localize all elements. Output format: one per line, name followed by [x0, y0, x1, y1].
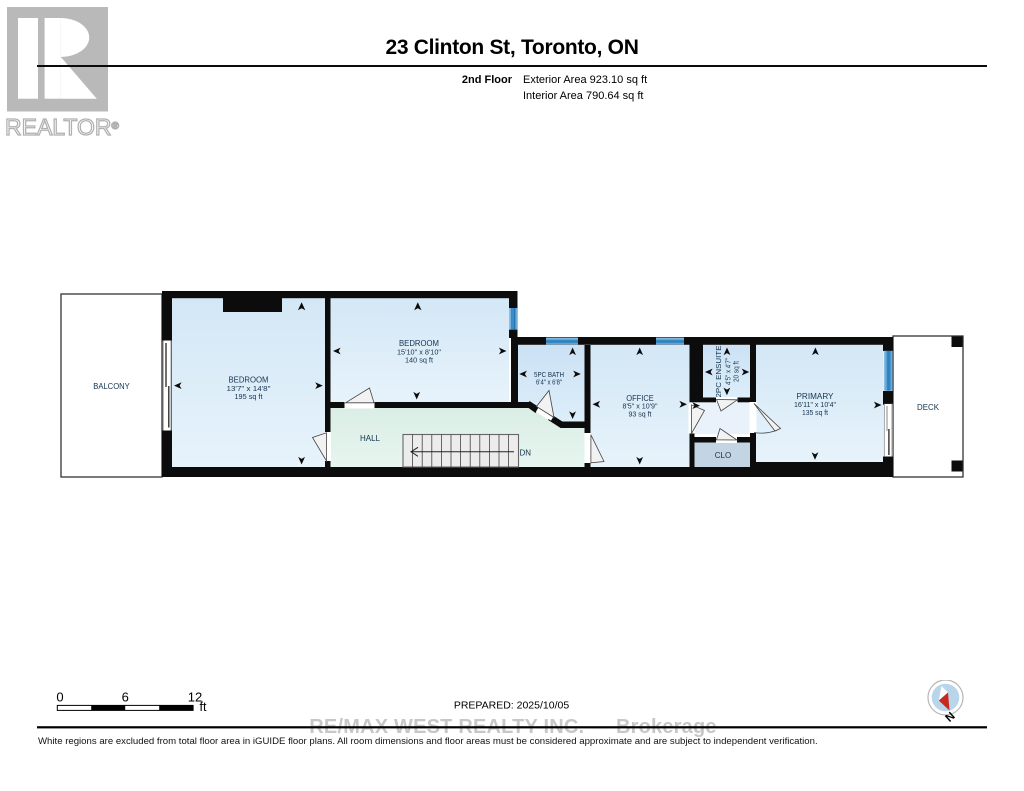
svg-text:HALL: HALL: [360, 433, 380, 443]
svg-text:BALCONY: BALCONY: [93, 382, 130, 391]
svg-text:140 sq ft: 140 sq ft: [405, 355, 434, 364]
svg-text:0: 0: [56, 690, 63, 705]
svg-text:4'5" x 4'7": 4'5" x 4'7": [725, 358, 733, 385]
svg-text:DECK: DECK: [917, 402, 939, 412]
svg-text:BEDROOM: BEDROOM: [229, 374, 269, 384]
svg-text:135 sq ft: 135 sq ft: [802, 408, 829, 417]
svg-text:CLO: CLO: [715, 451, 732, 460]
svg-text:White regions are excluded fro: White regions are excluded from total fl…: [38, 736, 818, 747]
svg-text:ft: ft: [200, 700, 207, 714]
svg-text:195 sq ft: 195 sq ft: [235, 392, 264, 401]
svg-text:DN: DN: [520, 447, 532, 457]
svg-text:6'4" x 6'8": 6'4" x 6'8": [536, 378, 562, 386]
svg-text:2PC ENSUITE: 2PC ENSUITE: [714, 345, 723, 397]
svg-text:93 sq ft: 93 sq ft: [629, 410, 653, 419]
svg-text:PREPARED: 2025/10/05: PREPARED: 2025/10/05: [454, 700, 570, 712]
svg-text:6: 6: [122, 690, 129, 705]
svg-text:20 sq ft: 20 sq ft: [733, 361, 741, 382]
